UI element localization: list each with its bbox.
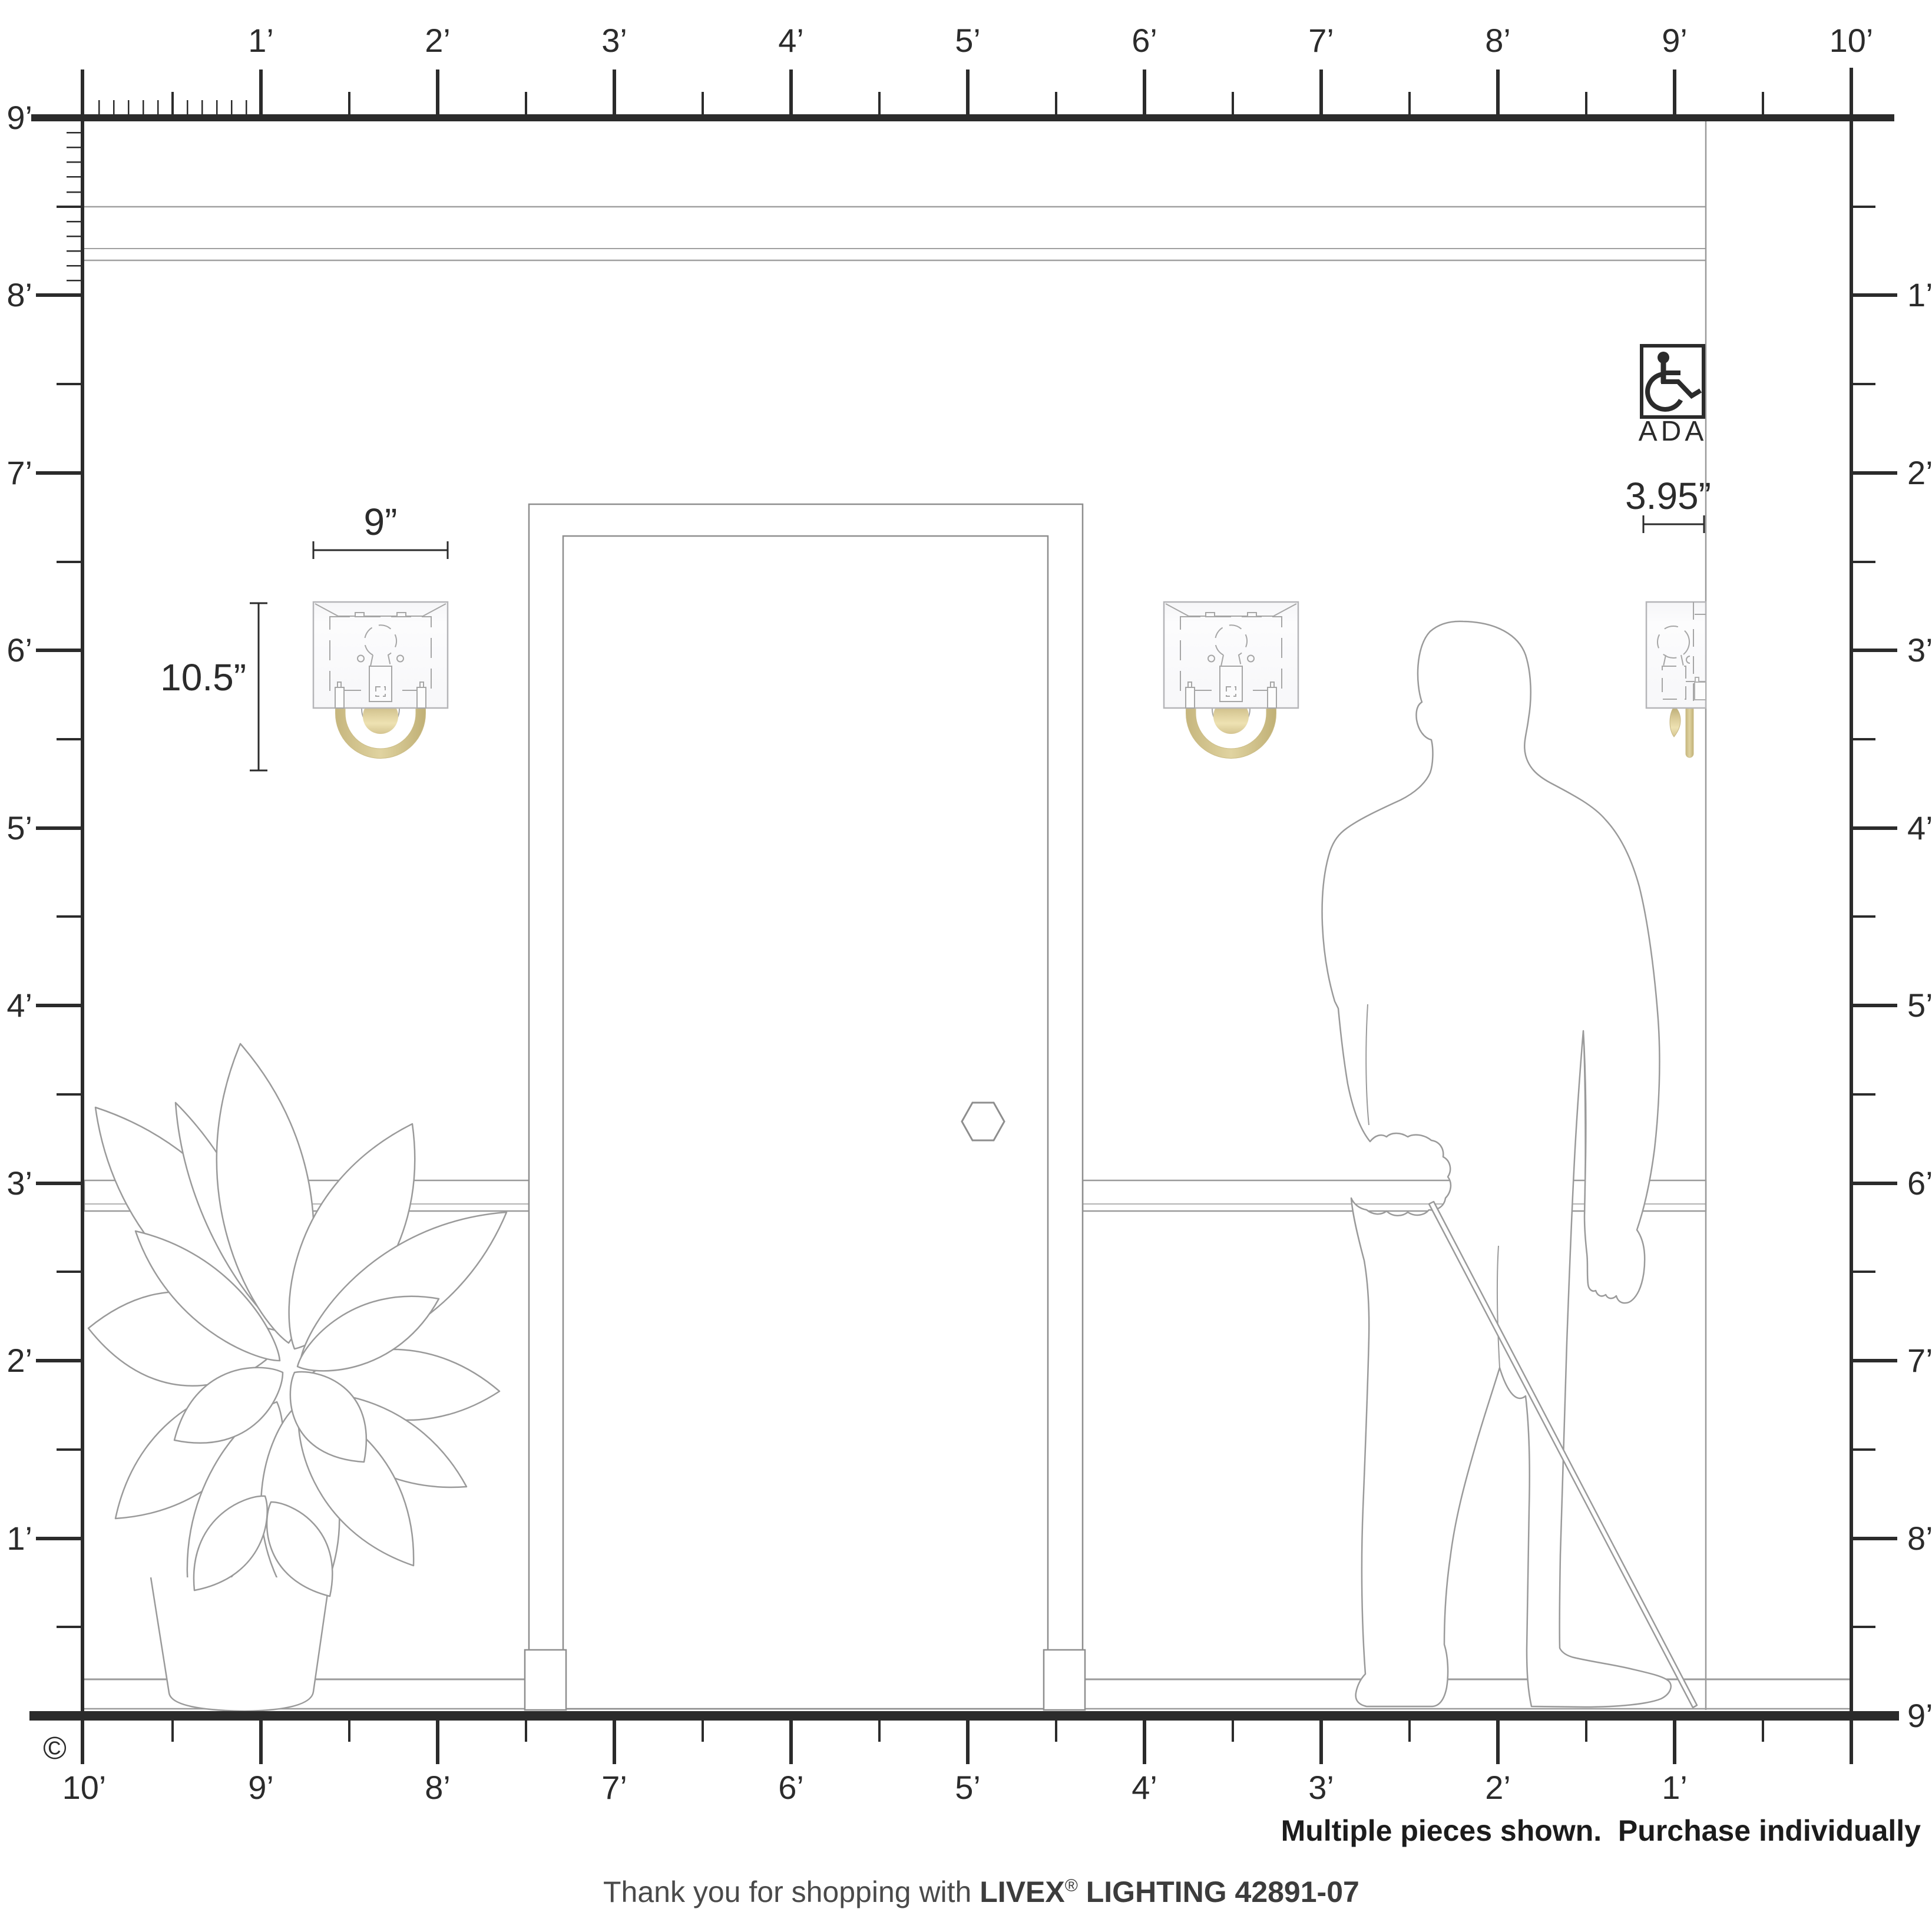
svg-text:8’: 8’ bbox=[1907, 1520, 1932, 1557]
svg-text:10.5”: 10.5” bbox=[160, 656, 246, 699]
svg-text:10’: 10’ bbox=[62, 1769, 107, 1806]
svg-text:3’: 3’ bbox=[1308, 1769, 1334, 1806]
svg-text:8’: 8’ bbox=[6, 276, 32, 313]
svg-text:1’: 1’ bbox=[248, 22, 274, 59]
svg-text:4’: 4’ bbox=[6, 987, 32, 1024]
svg-text:5’: 5’ bbox=[955, 22, 981, 59]
svg-text:2’: 2’ bbox=[1907, 454, 1932, 491]
svg-text:1’: 1’ bbox=[1662, 1769, 1688, 1806]
svg-text:7’: 7’ bbox=[601, 1769, 627, 1806]
svg-text:3.95”: 3.95” bbox=[1625, 475, 1711, 517]
svg-text:Thank you for shopping with LI: Thank you for shopping with LIVEX® LIGHT… bbox=[603, 1875, 1359, 1908]
svg-text:3’: 3’ bbox=[1907, 631, 1932, 669]
svg-text:Multiple pieces shown. Purcha: Multiple pieces shown. Purchase individu… bbox=[1281, 1814, 1921, 1847]
svg-text:5’: 5’ bbox=[6, 809, 32, 846]
svg-text:4’: 4’ bbox=[778, 22, 804, 59]
svg-text:6’: 6’ bbox=[6, 631, 32, 669]
svg-text:9’: 9’ bbox=[1907, 1697, 1932, 1734]
svg-text:2’: 2’ bbox=[1485, 1769, 1511, 1806]
svg-text:6’: 6’ bbox=[1907, 1165, 1932, 1202]
svg-text:2’: 2’ bbox=[425, 22, 451, 59]
svg-text:5’: 5’ bbox=[955, 1769, 981, 1806]
svg-text:3’: 3’ bbox=[6, 1165, 32, 1202]
svg-text:1’: 1’ bbox=[6, 1520, 32, 1557]
svg-text:7’: 7’ bbox=[1308, 22, 1334, 59]
svg-text:9”: 9” bbox=[364, 501, 398, 543]
svg-text:7’: 7’ bbox=[1907, 1342, 1932, 1379]
svg-text:10’: 10’ bbox=[1830, 22, 1874, 59]
svg-text:6’: 6’ bbox=[778, 1769, 804, 1806]
svg-text:5’: 5’ bbox=[1907, 987, 1932, 1024]
svg-text:9’: 9’ bbox=[248, 1769, 274, 1806]
svg-text:3’: 3’ bbox=[601, 22, 627, 59]
svg-text:©: © bbox=[43, 1731, 67, 1766]
svg-text:8’: 8’ bbox=[425, 1769, 451, 1806]
svg-text:1’: 1’ bbox=[1907, 276, 1932, 313]
svg-text:7’: 7’ bbox=[6, 454, 32, 491]
svg-text:4’: 4’ bbox=[1132, 1769, 1157, 1806]
svg-text:6’: 6’ bbox=[1132, 22, 1157, 59]
svg-text:4’: 4’ bbox=[1907, 809, 1932, 846]
svg-text:9’: 9’ bbox=[1662, 22, 1688, 59]
svg-text:2’: 2’ bbox=[6, 1342, 32, 1379]
svg-text:ADA: ADA bbox=[1639, 416, 1708, 447]
svg-text:8’: 8’ bbox=[1485, 22, 1511, 59]
svg-text:9’: 9’ bbox=[6, 99, 32, 136]
